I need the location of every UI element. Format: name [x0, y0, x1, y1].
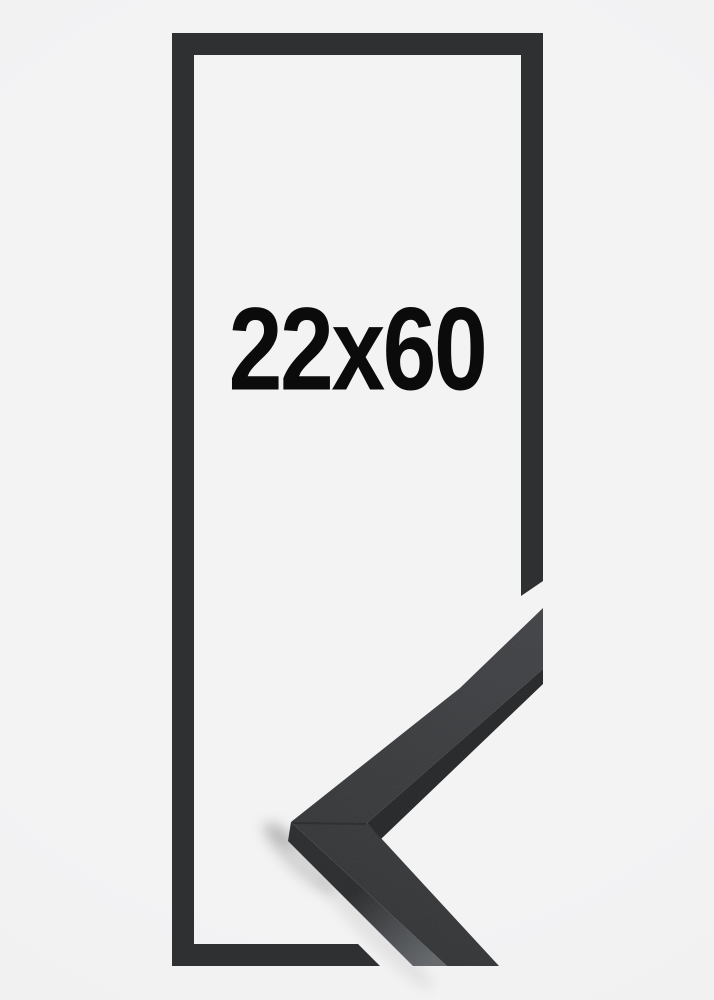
- frame-border-top: [172, 33, 543, 55]
- frame-border-left: [172, 33, 194, 966]
- moulding-grain-overlay: [288, 608, 543, 966]
- product-image: 22x60: [0, 0, 714, 1000]
- frame-graphic: [0, 0, 714, 1000]
- size-label: 22x60: [64, 291, 649, 409]
- frame-border-bottom: [172, 944, 380, 966]
- moulding-corner-sample: [288, 608, 543, 966]
